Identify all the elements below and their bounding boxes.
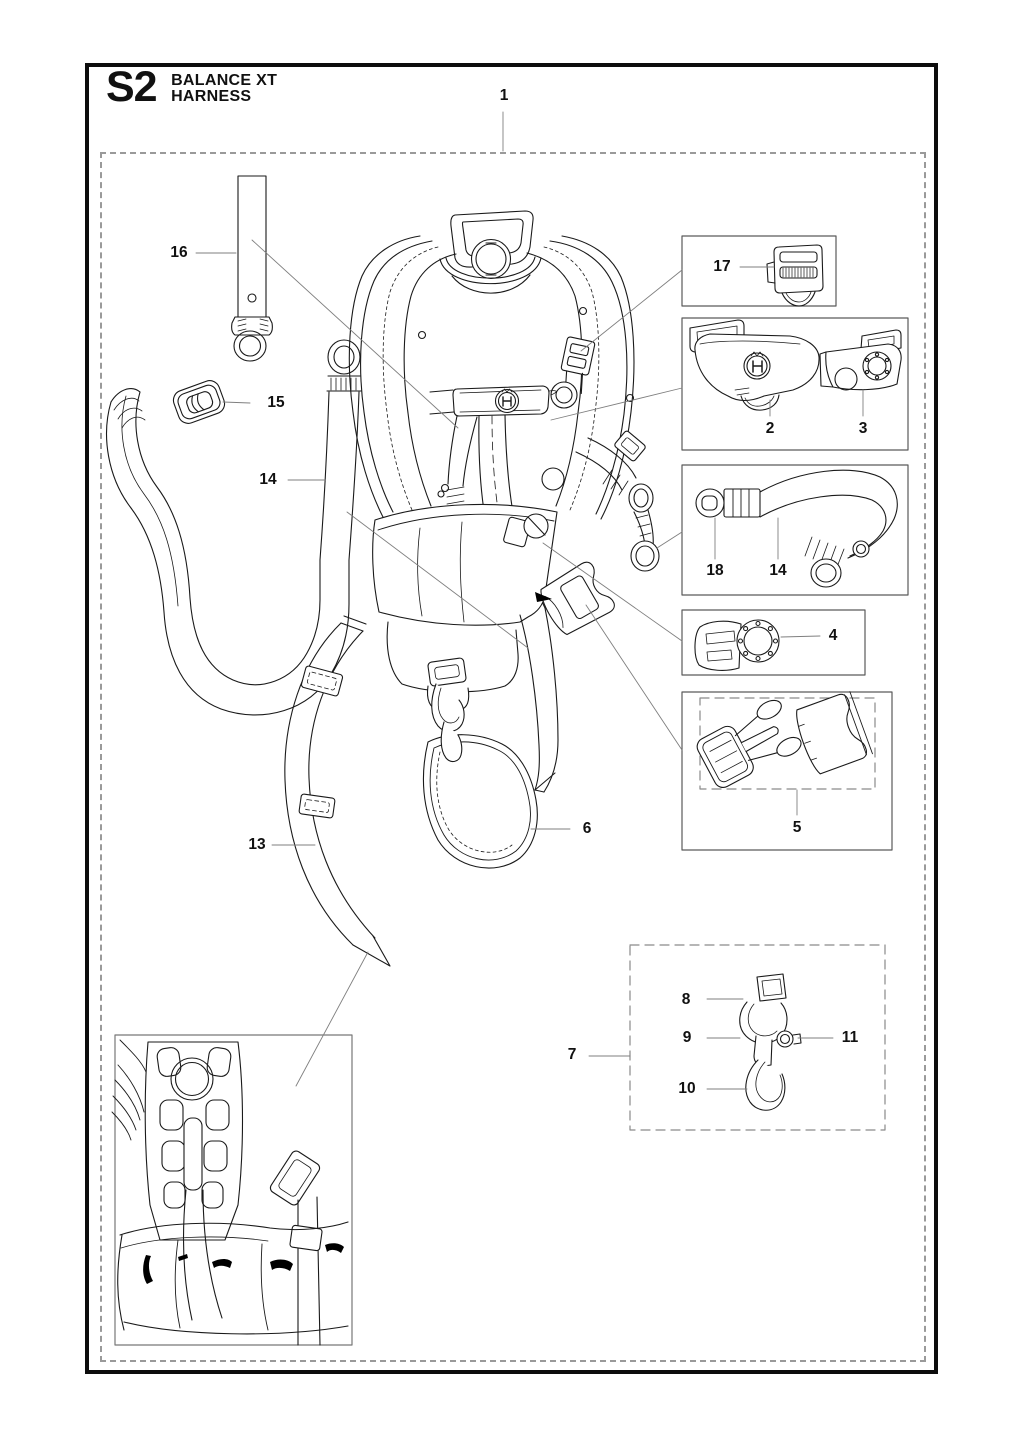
callout-1: 1 bbox=[500, 87, 509, 105]
part-16-strap-drawing bbox=[232, 176, 273, 361]
callout-3: 3 bbox=[859, 420, 868, 438]
parts-diagram-page: S2 BALANCE XT HARNESS bbox=[0, 0, 1024, 1435]
leader-4 bbox=[781, 636, 820, 637]
callout-11: 11 bbox=[842, 1029, 858, 1047]
callout-16: 16 bbox=[170, 244, 187, 262]
leader-13-inset bbox=[296, 952, 368, 1086]
leader-18-14-diagonal bbox=[657, 532, 682, 548]
part-15-buckle-drawing bbox=[171, 378, 228, 426]
callout-15: 15 bbox=[267, 394, 284, 412]
part-18-14-strap-drawing bbox=[696, 470, 897, 587]
diagram-artwork bbox=[0, 0, 1024, 1435]
harness-illustration bbox=[349, 211, 659, 868]
hook-assembly-drawing bbox=[740, 974, 801, 1110]
part-3-plate-drawing bbox=[820, 330, 901, 390]
part-4-ring-drawing bbox=[695, 620, 779, 670]
callout-7: 7 bbox=[568, 1046, 577, 1064]
callout-4: 4 bbox=[829, 627, 838, 645]
part-13-strap-drawing bbox=[285, 616, 390, 966]
callout-10: 10 bbox=[678, 1080, 695, 1098]
callout-17: 17 bbox=[713, 258, 730, 276]
callout-14-right: 14 bbox=[769, 562, 786, 580]
part-5-buckle-drawing bbox=[693, 691, 873, 793]
callout-14-left: 14 bbox=[259, 471, 276, 489]
part-17-buckle-drawing bbox=[767, 245, 823, 306]
callout-5: 5 bbox=[793, 819, 802, 837]
callout-9: 9 bbox=[683, 1029, 692, 1047]
part-2-plate-drawing bbox=[690, 320, 819, 410]
callout-13: 13 bbox=[248, 836, 265, 854]
leader-17-diagonal bbox=[581, 270, 682, 351]
callout-8: 8 bbox=[682, 991, 691, 1009]
leader-5-diagonal bbox=[586, 605, 682, 750]
callout-2: 2 bbox=[766, 420, 775, 438]
leader-15 bbox=[223, 402, 250, 403]
back-view-inset-drawing bbox=[112, 1040, 348, 1345]
part-14-tube-drawing bbox=[107, 340, 361, 715]
callout-6: 6 bbox=[583, 820, 592, 838]
callout-18: 18 bbox=[706, 562, 723, 580]
